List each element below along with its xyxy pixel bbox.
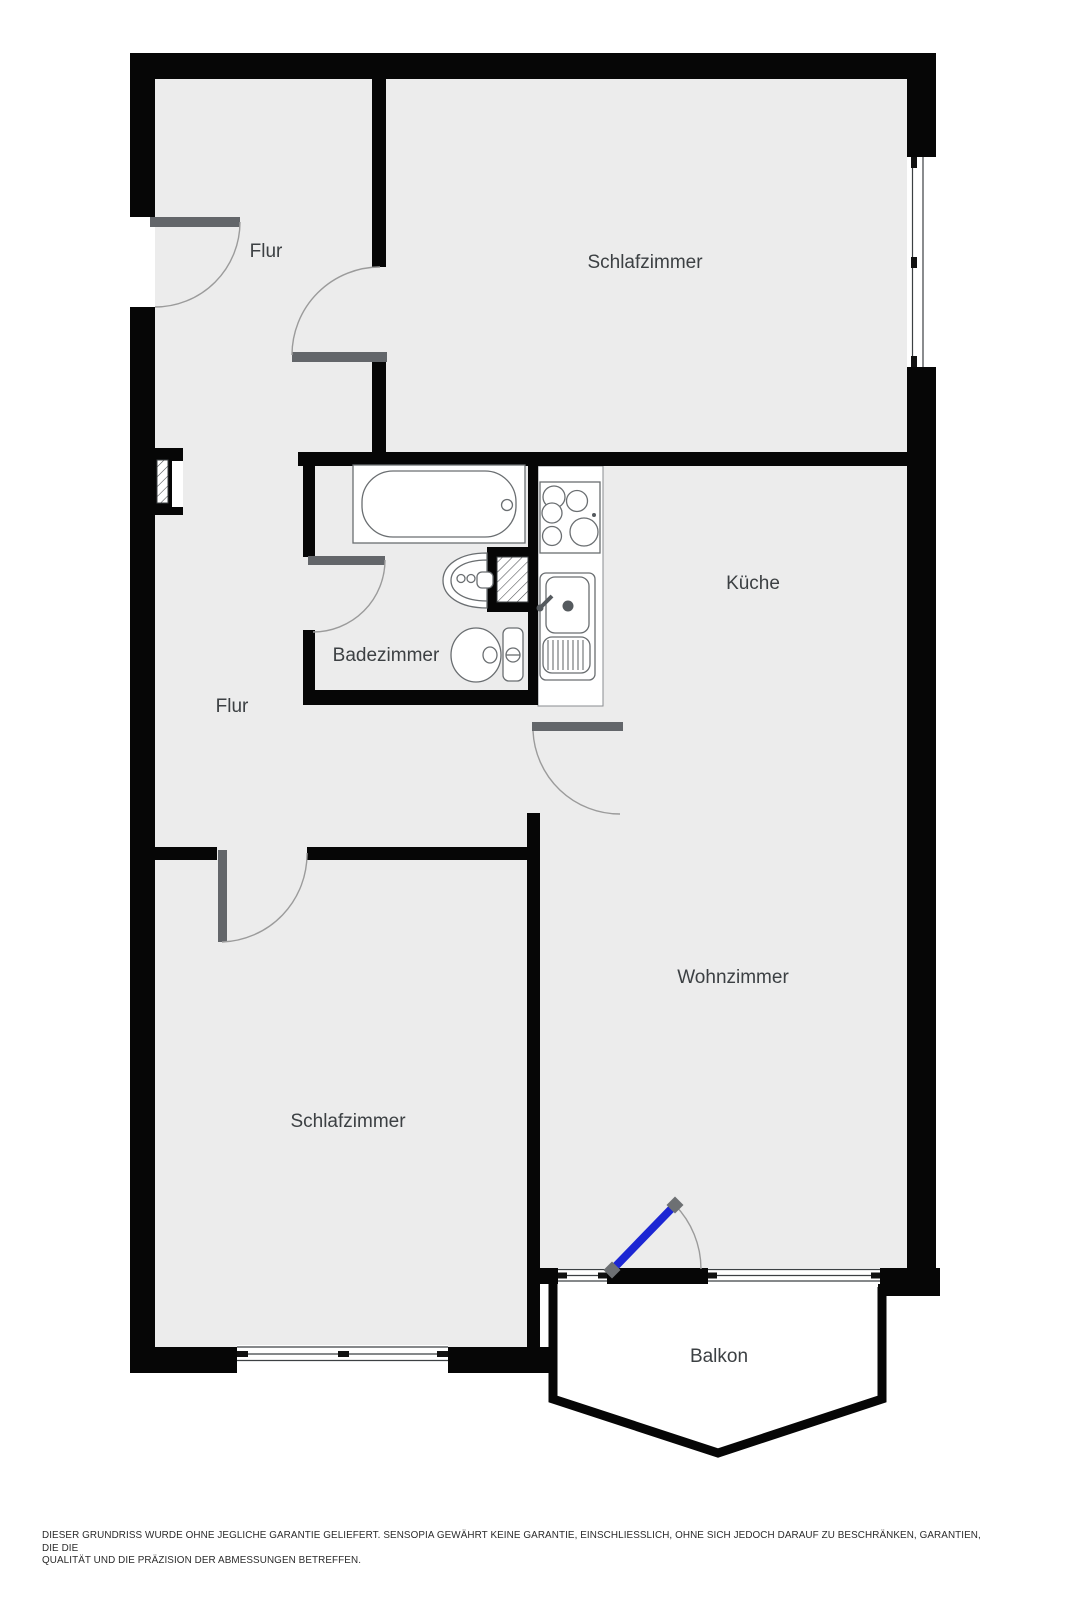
shaft-hatch-icon bbox=[497, 557, 528, 602]
floor-plan-page: Flur Schlafzimmer Küche Badezimmer Flur … bbox=[0, 0, 1067, 1600]
bathroom-shaft bbox=[487, 547, 538, 612]
window-glyph-wohnzimmer-right bbox=[708, 1268, 880, 1284]
disclaimer-text: DIESER GRUNDRISS WURDE OHNE JEGLICHE GAR… bbox=[42, 1529, 991, 1567]
room-label-balkon: Balkon bbox=[690, 1346, 748, 1368]
window-glyph-schlafzimmer-top bbox=[907, 157, 937, 367]
room-label-wohnzimmer: Wohnzimmer bbox=[677, 967, 789, 989]
sink-drainer bbox=[543, 637, 590, 673]
balcony-outline bbox=[553, 1284, 882, 1453]
floor-plan-drawing bbox=[0, 0, 1067, 1600]
room-label-schlafzimmer-top: Schlafzimmer bbox=[587, 252, 702, 274]
wall-shaft-left bbox=[155, 448, 183, 515]
shaft-hatch-icon bbox=[157, 460, 168, 503]
disclaimer-line-2: QUALITÄT UND DIE PRÄZISION DER ABMESSUNG… bbox=[42, 1554, 991, 1567]
window-glyph-schlafzimmer-bottom bbox=[237, 1345, 448, 1373]
bathtub-icon bbox=[353, 465, 525, 543]
room-label-kueche: Küche bbox=[726, 573, 780, 595]
disclaimer-line-1: DIESER GRUNDRISS WURDE OHNE JEGLICHE GAR… bbox=[42, 1529, 991, 1554]
kitchen-sink-icon bbox=[537, 573, 596, 680]
room-label-badezimmer: Badezimmer bbox=[333, 645, 440, 667]
room-label-flur-top: Flur bbox=[250, 241, 283, 263]
toilet-icon bbox=[451, 628, 523, 682]
room-label-schlafzimmer-bottom: Schlafzimmer bbox=[290, 1111, 405, 1133]
stove-icon bbox=[540, 482, 600, 553]
room-label-flur-mid: Flur bbox=[216, 696, 249, 718]
window-glyph-wohnzimmer-left bbox=[558, 1268, 607, 1284]
